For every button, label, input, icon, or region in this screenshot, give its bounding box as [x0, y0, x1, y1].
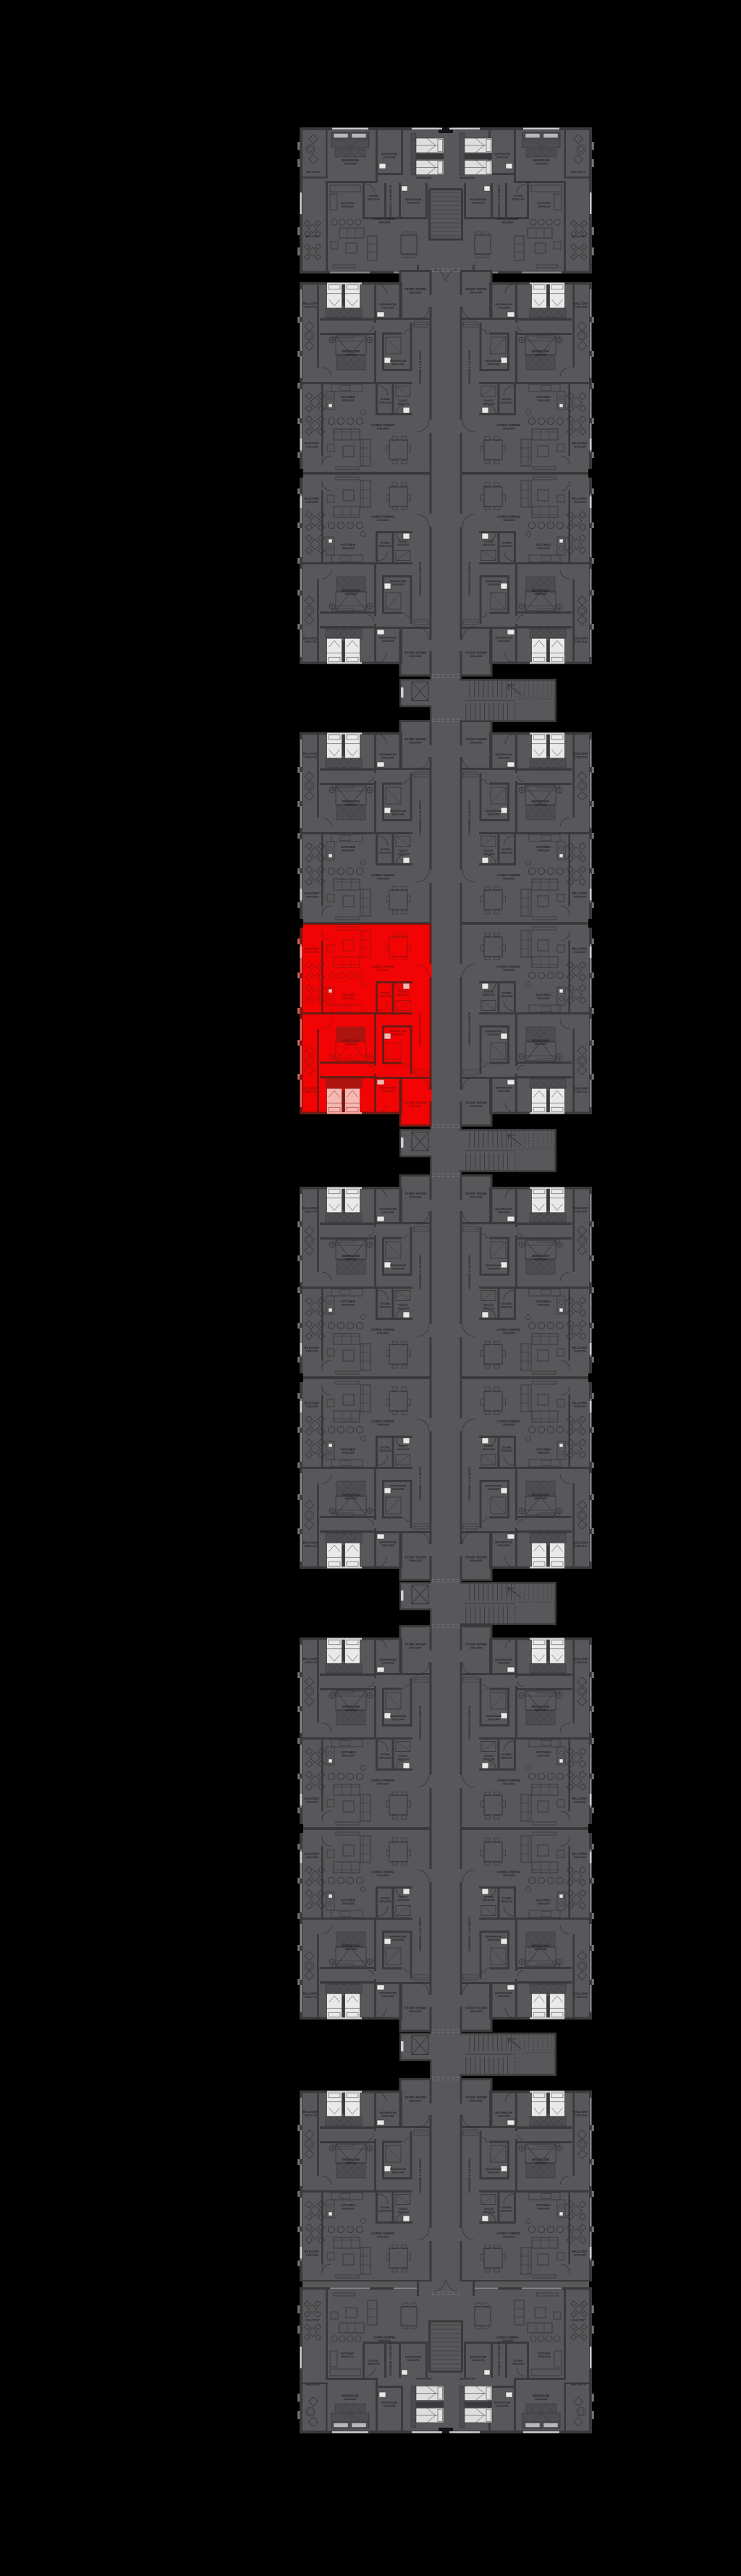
svg-text:LIVING DINING: LIVING DINING — [371, 2232, 395, 2235]
svg-text:3000x2400: 3000x2400 — [538, 997, 550, 1000]
svg-text:CORRIDOR 1.2 M WIDTH: CORRIDOR 1.2 M WIDTH — [418, 1917, 422, 1951]
svg-text:BALCONY: BALCONY — [303, 1657, 318, 1661]
svg-text:BALCONY: BALCONY — [305, 2318, 320, 2321]
svg-text:BALCONY: BALCONY — [303, 1541, 318, 1544]
svg-text:1300x2100: 1300x2100 — [483, 1308, 495, 1310]
svg-text:STORE: STORE — [501, 2206, 512, 2209]
svg-text:LIVING DINING: LIVING DINING — [373, 217, 396, 221]
svg-text:BEDROOM: BEDROOM — [342, 2394, 359, 2397]
svg-text:STUDY ROOM: STUDY ROOM — [465, 1192, 487, 1195]
svg-text:1300x2100: 1300x2100 — [379, 1449, 391, 1452]
svg-text:4500x3000: 4500x3000 — [345, 804, 357, 807]
svg-text:1350x7100: 1350x7100 — [305, 1211, 317, 1213]
svg-text:1300x2100: 1300x2100 — [501, 1449, 513, 1452]
svg-text:1300x2100: 1300x2100 — [397, 403, 410, 406]
svg-text:LIVING DINING: LIVING DINING — [497, 873, 521, 877]
svg-text:3000x2400: 3000x2400 — [538, 1304, 550, 1307]
svg-text:BALCONY: BALCONY — [306, 2382, 321, 2386]
svg-text:1700x2350: 1700x2350 — [306, 501, 318, 504]
svg-text:1300x2100: 1300x2100 — [483, 853, 495, 856]
svg-text:BALCONY: BALCONY — [303, 2110, 318, 2114]
svg-text:BEDROOM: BEDROOM — [532, 1254, 549, 1258]
svg-text:1700x2350: 1700x2350 — [306, 1405, 318, 1408]
svg-text:3000x2400: 3000x2400 — [538, 547, 550, 550]
svg-text:BALCONY: BALCONY — [572, 441, 588, 445]
svg-text:1350x7100: 1350x7100 — [575, 640, 588, 643]
svg-text:BALCONY: BALCONY — [303, 302, 318, 305]
svg-text:4500x3000: 4500x3000 — [345, 1709, 357, 1712]
svg-text:KITCHEN: KITCHEN — [538, 201, 551, 205]
svg-text:LIVING DINING: LIVING DINING — [371, 1779, 395, 1782]
svg-text:LIVING DINING: LIVING DINING — [497, 965, 521, 968]
svg-text:2000x2400: 2000x2400 — [470, 292, 483, 295]
svg-text:1700x2350: 1700x2350 — [574, 951, 586, 954]
svg-text:1600x2100: 1600x2100 — [368, 198, 380, 201]
svg-text:7400x3600: 7400x3600 — [377, 969, 389, 972]
svg-text:1300x2100: 1300x2100 — [379, 2210, 391, 2213]
svg-text:KITCHEN: KITCHEN — [341, 1750, 355, 1754]
svg-text:TOILET: TOILET — [483, 1754, 494, 1758]
svg-text:KITCHEN: KITCHEN — [341, 2351, 354, 2355]
svg-text:4500x3000: 4500x3000 — [345, 2162, 357, 2165]
svg-text:7400x3600: 7400x3600 — [377, 2236, 389, 2239]
svg-text:1350x7100: 1350x7100 — [575, 306, 588, 309]
svg-text:3000x2400: 3000x2400 — [342, 1304, 355, 1307]
svg-text:7400x3600: 7400x3600 — [377, 878, 389, 881]
svg-text:TOILET: TOILET — [483, 989, 494, 993]
svg-text:STORE: STORE — [501, 847, 512, 851]
svg-text:BALCONY: BALCONY — [303, 1086, 318, 1090]
svg-text:STORE: STORE — [380, 1753, 390, 1756]
svg-text:3000x2400: 3000x2400 — [538, 850, 550, 852]
svg-text:1300x2100: 1300x2100 — [397, 993, 410, 996]
svg-text:7400x3600: 7400x3600 — [503, 878, 515, 881]
svg-text:2000x2400: 2000x2400 — [410, 1105, 422, 1108]
svg-text:STUDY ROOM: STUDY ROOM — [465, 1101, 487, 1104]
svg-text:BATHROOM: BATHROOM — [390, 1030, 406, 1033]
svg-text:1700x2350: 1700x2350 — [498, 307, 510, 310]
svg-text:BATHROOM: BATHROOM — [379, 1991, 397, 1994]
svg-text:KITCHEN: KITCHEN — [538, 2351, 551, 2355]
svg-text:2000x2400: 2000x2400 — [392, 1719, 405, 1721]
svg-text:CORRIDOR 1.2 M WIDTH: CORRIDOR 1.2 M WIDTH — [467, 1466, 471, 1500]
svg-text:1300x2100: 1300x2100 — [501, 1306, 513, 1309]
svg-text:1700x2350: 1700x2350 — [574, 446, 586, 449]
svg-text:2000x2400: 2000x2400 — [410, 1559, 422, 1562]
svg-text:2000x1700: 2000x1700 — [473, 202, 485, 205]
svg-text:2000x1700: 2000x1700 — [473, 2359, 485, 2362]
svg-text:STORE: STORE — [380, 1896, 390, 1899]
svg-text:2000x2400: 2000x2400 — [470, 2100, 483, 2103]
svg-text:STORE: STORE — [380, 847, 390, 851]
svg-text:2000x2400: 2000x2400 — [392, 1268, 405, 1271]
svg-text:TOILET: TOILET — [483, 1894, 494, 1898]
svg-text:4500x3000: 4500x3000 — [345, 354, 357, 357]
svg-text:CORRIDOR 1.2 M WIDTH: CORRIDOR 1.2 M WIDTH — [467, 350, 471, 384]
svg-text:BATHROOM: BATHROOM — [379, 753, 397, 756]
svg-text:LIVING DINING: LIVING DINING — [497, 1419, 521, 1423]
svg-text:BALCONY: BALCONY — [574, 1657, 589, 1661]
svg-text:1300x2100: 1300x2100 — [483, 1448, 495, 1451]
svg-text:1300x2100: 1300x2100 — [501, 995, 513, 998]
svg-text:BATHROOM: BATHROOM — [379, 1540, 397, 1543]
svg-text:BATHROOM: BATHROOM — [390, 1715, 406, 1718]
svg-text:1350x7100: 1350x7100 — [305, 756, 317, 759]
svg-text:CORRIDOR 1.2 M WIDTH: CORRIDOR 1.2 M WIDTH — [418, 1466, 422, 1500]
svg-text:4500x3000: 4500x3000 — [535, 593, 547, 596]
svg-text:BEDROOM: BEDROOM — [342, 1705, 360, 1708]
svg-text:1700x2350: 1700x2350 — [306, 1801, 318, 1804]
svg-text:STORE: STORE — [380, 2206, 390, 2209]
svg-text:4500x3000: 4500x3000 — [535, 1709, 547, 1712]
svg-text:7400x3600: 7400x3600 — [503, 1332, 515, 1335]
svg-text:KITCHEN: KITCHEN — [341, 543, 355, 546]
svg-text:BEDROOM: BEDROOM — [532, 349, 549, 353]
svg-text:1700x2350: 1700x2350 — [574, 1801, 586, 1804]
svg-text:1700x2350: 1700x2350 — [574, 1350, 586, 1353]
svg-text:KITCHEN: KITCHEN — [341, 395, 355, 399]
svg-text:BEDROOM: BEDROOM — [342, 588, 360, 592]
svg-text:TOILET: TOILET — [398, 1754, 408, 1758]
svg-text:TOILET: TOILET — [483, 2207, 494, 2211]
svg-text:BATHROOM: BATHROOM — [495, 1658, 512, 1661]
svg-text:BATHROOM: BATHROOM — [486, 1264, 501, 1267]
svg-text:1700x2350: 1700x2350 — [382, 640, 394, 643]
svg-text:BALCONY: BALCONY — [572, 1797, 588, 1800]
svg-text:2000x2400: 2000x2400 — [410, 2100, 422, 2103]
svg-text:1350x7100: 1350x7100 — [305, 1545, 317, 1548]
svg-text:7400x3600: 7400x3600 — [377, 428, 389, 431]
svg-text:BATHROOM: BATHROOM — [486, 580, 501, 582]
svg-text:BATHROOM: BATHROOM — [390, 1264, 406, 1267]
svg-text:1700x2350: 1700x2350 — [306, 446, 318, 449]
svg-text:LIVING DINING: LIVING DINING — [497, 514, 521, 518]
svg-text:4000x4000: 4000x4000 — [344, 163, 357, 166]
svg-text:STORE: STORE — [380, 991, 390, 994]
svg-text:BATHROOM: BATHROOM — [470, 2355, 486, 2358]
svg-text:2000x2400: 2000x2400 — [488, 1719, 500, 1721]
svg-text:4500x3000: 4500x3000 — [535, 1497, 547, 1500]
svg-text:7400x3600: 7400x3600 — [501, 221, 514, 224]
svg-text:2000x2400: 2000x2400 — [488, 813, 500, 816]
svg-text:BALCONY: BALCONY — [572, 891, 588, 895]
svg-text:KITCHEN: KITCHEN — [341, 993, 355, 996]
svg-text:2300x2350: 2300x2350 — [496, 156, 509, 159]
svg-text:BATHROOM: BATHROOM — [495, 635, 512, 639]
svg-text:CORRIDOR 1.2 M WIDTH: CORRIDOR 1.2 M WIDTH — [467, 800, 471, 834]
svg-text:2000x1700: 2000x1700 — [407, 202, 420, 205]
svg-text:2000x2400: 2000x2400 — [470, 1105, 483, 1108]
svg-text:KITCHEN: KITCHEN — [536, 993, 551, 996]
svg-text:KITCHEN: KITCHEN — [341, 201, 354, 205]
svg-text:2000x2400: 2000x2400 — [410, 742, 422, 745]
svg-text:1350x7100: 1350x7100 — [575, 756, 588, 759]
svg-text:2000x2400: 2000x2400 — [470, 1196, 483, 1199]
svg-text:BATHROOM: BATHROOM — [486, 1030, 501, 1033]
svg-text:1300x2100: 1300x2100 — [483, 1758, 495, 1761]
svg-text:2300x2350: 2300x2350 — [384, 2405, 396, 2407]
svg-text:BALCONY: BALCONY — [572, 234, 586, 238]
svg-text:2600x2100: 2600x2100 — [538, 2355, 551, 2358]
svg-text:BATHROOM: BATHROOM — [390, 580, 406, 582]
svg-text:BATHROOM: BATHROOM — [486, 360, 501, 363]
svg-text:1300x2100: 1300x2100 — [397, 2211, 410, 2214]
svg-text:BATHROOM: BATHROOM — [470, 198, 486, 201]
svg-text:STUDY ROOM: STUDY ROOM — [405, 1555, 426, 1559]
svg-text:1300x2100: 1300x2100 — [397, 1308, 410, 1310]
svg-text:BATHROOM: BATHROOM — [379, 1207, 397, 1211]
svg-text:4500x3000: 4500x3000 — [345, 593, 357, 596]
svg-text:1350x7100: 1350x7100 — [305, 1996, 317, 1999]
svg-text:1700x2350: 1700x2350 — [498, 2115, 510, 2118]
svg-text:BATHROOM: BATHROOM — [390, 1935, 406, 1938]
svg-text:1300x2100: 1300x2100 — [501, 1900, 513, 1903]
svg-text:BEDROOM: BEDROOM — [532, 588, 549, 592]
svg-text:TOILET: TOILET — [398, 539, 408, 543]
svg-text:CORRIDOR 1.2 M WIDTH: CORRIDOR 1.2 M WIDTH — [418, 1012, 422, 1046]
svg-text:7400x3600: 7400x3600 — [377, 1423, 389, 1426]
svg-text:4500x3000: 4500x3000 — [535, 354, 547, 357]
svg-text:STUDY ROOM: STUDY ROOM — [465, 1643, 487, 1646]
svg-text:BATHROOM: BATHROOM — [486, 810, 501, 813]
svg-text:1700x2350: 1700x2350 — [498, 1662, 510, 1665]
svg-text:3000x2400: 3000x2400 — [342, 1452, 355, 1454]
svg-text:STORE: STORE — [501, 1896, 512, 1899]
svg-text:BATHROOM: BATHROOM — [379, 635, 397, 639]
svg-text:BALCONY: BALCONY — [572, 1401, 588, 1404]
svg-text:BATHROOM: BATHROOM — [494, 153, 510, 156]
svg-text:TOILET: TOILET — [483, 849, 494, 852]
svg-text:STORE: STORE — [368, 195, 378, 198]
svg-text:BALCONY: BALCONY — [305, 441, 320, 445]
svg-text:STORE: STORE — [380, 397, 390, 401]
svg-text:BALCONY: BALCONY — [303, 1991, 318, 1995]
svg-text:BALCONY: BALCONY — [571, 170, 585, 174]
svg-text:1300x2100: 1300x2100 — [379, 545, 391, 548]
svg-text:BEDROOM: BEDROOM — [532, 1944, 549, 1947]
svg-text:3000x2400: 3000x2400 — [342, 850, 355, 852]
svg-text:STORE: STORE — [368, 2359, 378, 2362]
svg-text:TOILET: TOILET — [483, 1444, 494, 1447]
svg-text:BEDROOM: BEDROOM — [532, 1705, 549, 1708]
svg-text:CORRIDOR 1.2 M WIDTH: CORRIDOR 1.2 M WIDTH — [467, 562, 471, 596]
svg-text:LIVING DINING: LIVING DINING — [371, 965, 395, 968]
svg-text:BATHROOM: BATHROOM — [390, 1484, 406, 1487]
svg-text:1300x2100: 1300x2100 — [483, 403, 495, 406]
svg-text:TOILET: TOILET — [398, 399, 408, 402]
svg-text:BALCONY: BALCONY — [303, 636, 318, 640]
svg-text:1300x2100: 1300x2100 — [483, 2211, 495, 2214]
svg-text:BEDROOM: BEDROOM — [342, 800, 360, 803]
svg-text:2000x2400: 2000x2400 — [392, 2172, 405, 2174]
svg-text:BEDROOM: BEDROOM — [460, 176, 476, 179]
svg-text:2000x2400: 2000x2400 — [488, 363, 500, 366]
svg-text:BEDROOM: BEDROOM — [533, 158, 550, 162]
svg-text:1300x2100: 1300x2100 — [379, 1900, 391, 1903]
svg-text:BATHROOM: BATHROOM — [390, 360, 406, 363]
svg-text:1700x2350: 1700x2350 — [382, 1090, 394, 1093]
svg-text:1300x2100: 1300x2100 — [379, 852, 391, 855]
svg-text:2000x2400: 2000x2400 — [488, 1488, 500, 1491]
svg-text:1300x2100: 1300x2100 — [501, 402, 513, 404]
svg-text:2000x2400: 2000x2400 — [392, 813, 405, 816]
svg-text:BALCONY: BALCONY — [305, 1852, 320, 1855]
svg-text:2000x2400: 2000x2400 — [410, 2010, 422, 2013]
svg-text:4500x3000: 4500x3000 — [535, 2162, 547, 2165]
svg-text:2000x2400: 2000x2400 — [392, 1488, 405, 1491]
svg-text:BEDROOM: BEDROOM — [460, 2376, 476, 2380]
svg-text:BATHROOM: BATHROOM — [495, 2111, 512, 2114]
svg-text:1300x2100: 1300x2100 — [379, 995, 391, 998]
svg-text:LIVING DINING: LIVING DINING — [373, 2335, 396, 2339]
svg-text:4500x3000: 4500x3000 — [345, 1948, 357, 1951]
svg-text:1700x2350: 1700x2350 — [498, 640, 510, 643]
svg-text:KITCHEN: KITCHEN — [341, 1447, 355, 1451]
svg-text:STUDY ROOM: STUDY ROOM — [465, 1555, 487, 1559]
svg-text:2000x2400: 2000x2400 — [488, 1268, 500, 1271]
svg-text:2000x2400: 2000x2400 — [392, 583, 405, 586]
svg-text:KITCHEN: KITCHEN — [536, 845, 551, 849]
svg-text:LIVING DINING: LIVING DINING — [371, 514, 395, 518]
svg-text:KITCHEN: KITCHEN — [341, 1898, 355, 1902]
svg-text:BATHROOM: BATHROOM — [495, 1540, 512, 1543]
svg-text:TOILET: TOILET — [398, 2207, 408, 2211]
svg-text:LIVING DINING: LIVING DINING — [497, 1779, 521, 1782]
svg-text:CORRIDOR 1.2 M WIDTH: CORRIDOR 1.2 M WIDTH — [418, 1255, 422, 1289]
svg-text:1300x2100: 1300x2100 — [397, 853, 410, 856]
svg-text:BEDROOM: BEDROOM — [342, 2158, 360, 2161]
svg-text:BALCONY: BALCONY — [574, 2110, 589, 2114]
svg-text:KITCHEN: KITCHEN — [536, 2203, 551, 2207]
svg-text:2000x2400: 2000x2400 — [392, 1033, 405, 1036]
svg-text:2000x2400: 2000x2400 — [410, 1196, 422, 1199]
svg-text:CORRIDOR 1.2 M WIDTH: CORRIDOR 1.2 M WIDTH — [467, 2158, 471, 2192]
svg-text:1350x7100: 1350x7100 — [305, 306, 317, 309]
svg-text:4000x4000: 4000x4000 — [535, 2398, 548, 2401]
svg-text:BATHROOM: BATHROOM — [381, 2401, 397, 2404]
svg-text:CORRIDOR 1.2 M WIDTH: CORRIDOR 1.2 M WIDTH — [467, 1255, 471, 1289]
svg-text:BALCONY: BALCONY — [574, 1541, 589, 1544]
svg-text:2000x1700: 2000x1700 — [407, 2359, 420, 2362]
svg-text:BATHROOM: BATHROOM — [379, 1085, 397, 1089]
svg-text:KITCHEN: KITCHEN — [341, 2203, 355, 2207]
svg-text:LIVING DINING: LIVING DINING — [497, 2232, 521, 2235]
svg-text:BEDROOM: BEDROOM — [342, 349, 360, 353]
svg-text:STUDY ROOM: STUDY ROOM — [405, 1643, 426, 1646]
svg-text:1700x2350: 1700x2350 — [498, 1544, 510, 1547]
svg-text:1350x7100: 1350x7100 — [575, 2114, 588, 2117]
svg-text:STUDY ROOM: STUDY ROOM — [405, 651, 426, 654]
svg-text:STUDY ROOM: STUDY ROOM — [405, 2096, 426, 2099]
svg-text:STUDY ROOM: STUDY ROOM — [465, 2006, 487, 2009]
svg-text:TOILET: TOILET — [398, 989, 408, 993]
svg-text:7400x3600: 7400x3600 — [503, 969, 515, 972]
svg-text:TOILET: TOILET — [398, 1303, 408, 1307]
svg-text:1300x2100: 1300x2100 — [397, 543, 410, 546]
svg-text:CORRIDOR 1.2 M WIDTH: CORRIDOR 1.2 M WIDTH — [467, 1706, 471, 1740]
svg-text:1300x2100: 1300x2100 — [379, 1306, 391, 1309]
svg-text:1600x2100: 1600x2100 — [512, 2363, 525, 2365]
svg-text:BATHROOM: BATHROOM — [494, 2401, 510, 2404]
svg-text:7400x3600: 7400x3600 — [501, 2339, 514, 2342]
svg-text:BALCONY: BALCONY — [574, 302, 589, 305]
svg-text:BEDROOM: BEDROOM — [417, 176, 433, 179]
svg-text:1300x2100: 1300x2100 — [397, 1448, 410, 1451]
svg-text:KITCHEN: KITCHEN — [536, 1300, 551, 1303]
svg-text:BATHROOM: BATHROOM — [486, 1935, 501, 1938]
svg-text:BEDROOM: BEDROOM — [532, 1038, 549, 1042]
svg-text:4500x3000: 4500x3000 — [535, 1258, 547, 1261]
svg-text:2000x2400: 2000x2400 — [392, 1939, 405, 1941]
svg-text:2000x2400: 2000x2400 — [470, 1647, 483, 1650]
svg-text:STORE: STORE — [513, 195, 522, 198]
svg-text:1700x2350: 1700x2350 — [574, 1405, 586, 1408]
svg-text:1300x2100: 1300x2100 — [483, 993, 495, 996]
svg-text:1350x7100: 1350x7100 — [575, 1661, 588, 1664]
svg-text:BALCONY: BALCONY — [305, 234, 320, 238]
svg-text:3000x2400: 3000x2400 — [538, 1902, 550, 1905]
svg-text:CORRIDOR 1.2 M WIDTH: CORRIDOR 1.2 M WIDTH — [418, 2158, 422, 2192]
svg-text:BATHROOM: BATHROOM — [379, 302, 397, 306]
svg-text:2000x2400: 2000x2400 — [488, 1939, 500, 1941]
svg-text:TOILET: TOILET — [483, 1303, 494, 1307]
svg-text:2000x2400: 2000x2400 — [410, 1647, 422, 1650]
svg-text:TOILET: TOILET — [483, 539, 494, 543]
svg-text:LIVING DINING: LIVING DINING — [497, 1870, 521, 1873]
svg-text:2600x2100: 2600x2100 — [342, 206, 354, 208]
svg-text:KITCHEN: KITCHEN — [536, 395, 551, 399]
svg-text:BALCONY: BALCONY — [305, 2250, 320, 2253]
svg-text:BEDROOM: BEDROOM — [342, 158, 359, 162]
svg-text:1350x7100: 1350x7100 — [305, 640, 317, 643]
svg-text:TOILET: TOILET — [398, 1444, 408, 1447]
svg-text:BEDROOM: BEDROOM — [342, 1254, 360, 1258]
svg-text:7400x3600: 7400x3600 — [503, 428, 515, 431]
svg-text:STORE: STORE — [501, 1302, 512, 1305]
svg-text:BALCONY: BALCONY — [305, 496, 320, 500]
svg-text:4000x4000: 4000x4000 — [344, 2398, 357, 2401]
svg-text:1700x2350: 1700x2350 — [498, 1090, 510, 1093]
svg-text:7400x3600: 7400x3600 — [503, 519, 515, 522]
svg-text:LIVING DINING: LIVING DINING — [371, 1419, 395, 1423]
svg-text:BALCONY: BALCONY — [574, 752, 589, 755]
svg-text:3000x2400: 3000x2400 — [342, 547, 355, 550]
svg-text:1700x2350: 1700x2350 — [306, 1856, 318, 1859]
svg-text:1700x2350: 1700x2350 — [574, 501, 586, 504]
svg-text:BALCONY: BALCONY — [306, 170, 321, 174]
svg-text:1300x2100: 1300x2100 — [501, 852, 513, 855]
svg-text:1350x7100: 1350x7100 — [575, 1211, 588, 1213]
svg-text:7400x3600: 7400x3600 — [503, 1874, 515, 1877]
svg-text:CORRIDOR 1.2 M WIDTH: CORRIDOR 1.2 M WIDTH — [418, 800, 422, 834]
svg-text:TOILET: TOILET — [398, 849, 408, 852]
svg-text:7400x3600: 7400x3600 — [377, 1783, 389, 1786]
svg-text:1700x2350: 1700x2350 — [498, 757, 510, 760]
svg-text:2600x2100: 2600x2100 — [342, 2355, 354, 2358]
svg-text:2600x2100: 2600x2100 — [538, 206, 551, 208]
svg-text:4500x3000: 4500x3000 — [535, 1043, 547, 1046]
svg-text:1350x7100: 1350x7100 — [305, 1090, 317, 1093]
svg-text:BEDROOM: BEDROOM — [532, 1493, 549, 1496]
svg-text:1700x2350: 1700x2350 — [382, 757, 394, 760]
svg-text:BATHROOM: BATHROOM — [495, 1991, 512, 1994]
svg-text:1300x2100: 1300x2100 — [501, 1757, 513, 1760]
svg-text:LIVING DINING: LIVING DINING — [371, 423, 395, 427]
svg-text:STORE: STORE — [513, 2359, 522, 2362]
svg-text:7400x3600: 7400x3600 — [378, 221, 391, 224]
svg-text:BALCONY: BALCONY — [305, 1346, 320, 1350]
svg-text:4500x3000: 4500x3000 — [535, 1948, 547, 1951]
